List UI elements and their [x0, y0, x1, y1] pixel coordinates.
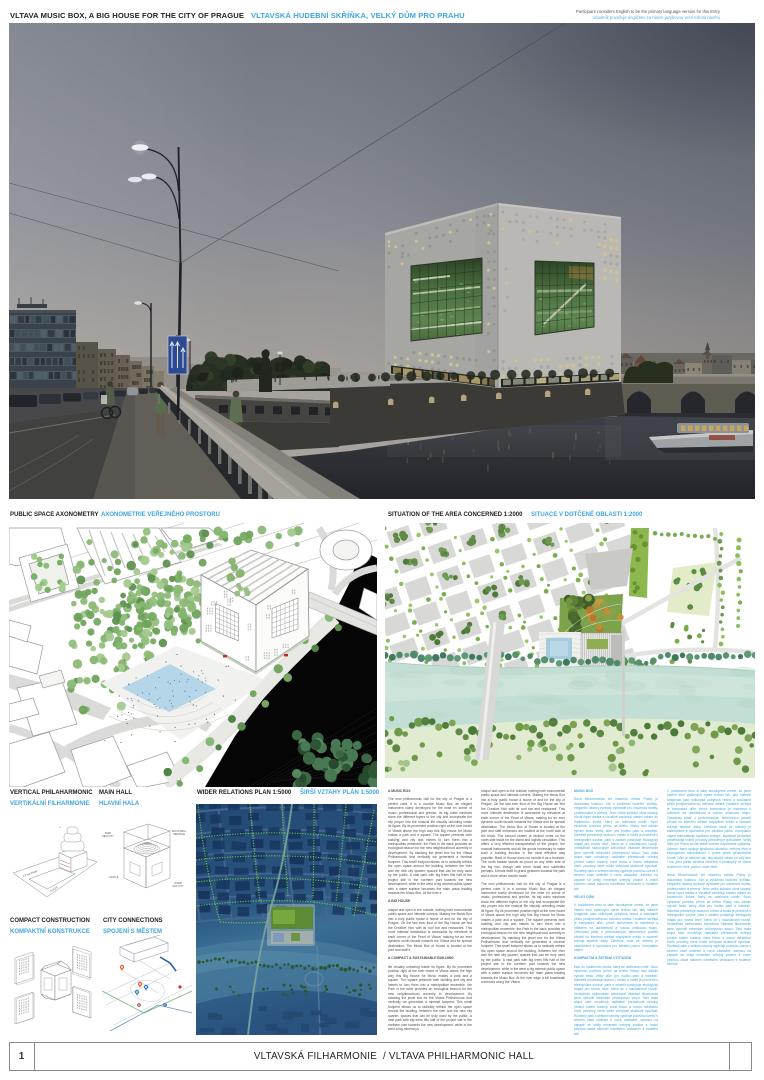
svg-text:NEW CITY: NEW CITY — [102, 835, 114, 838]
svg-text:HERITAGE: HERITAGE — [173, 833, 185, 836]
svg-text:OLD CITY: OLD CITY — [172, 885, 183, 888]
svg-text:B: B — [138, 1003, 140, 1007]
svg-text:CASTLE: CASTLE — [109, 876, 119, 879]
svg-text:H: H — [59, 827, 61, 829]
svg-text:C: C — [164, 1003, 166, 1007]
